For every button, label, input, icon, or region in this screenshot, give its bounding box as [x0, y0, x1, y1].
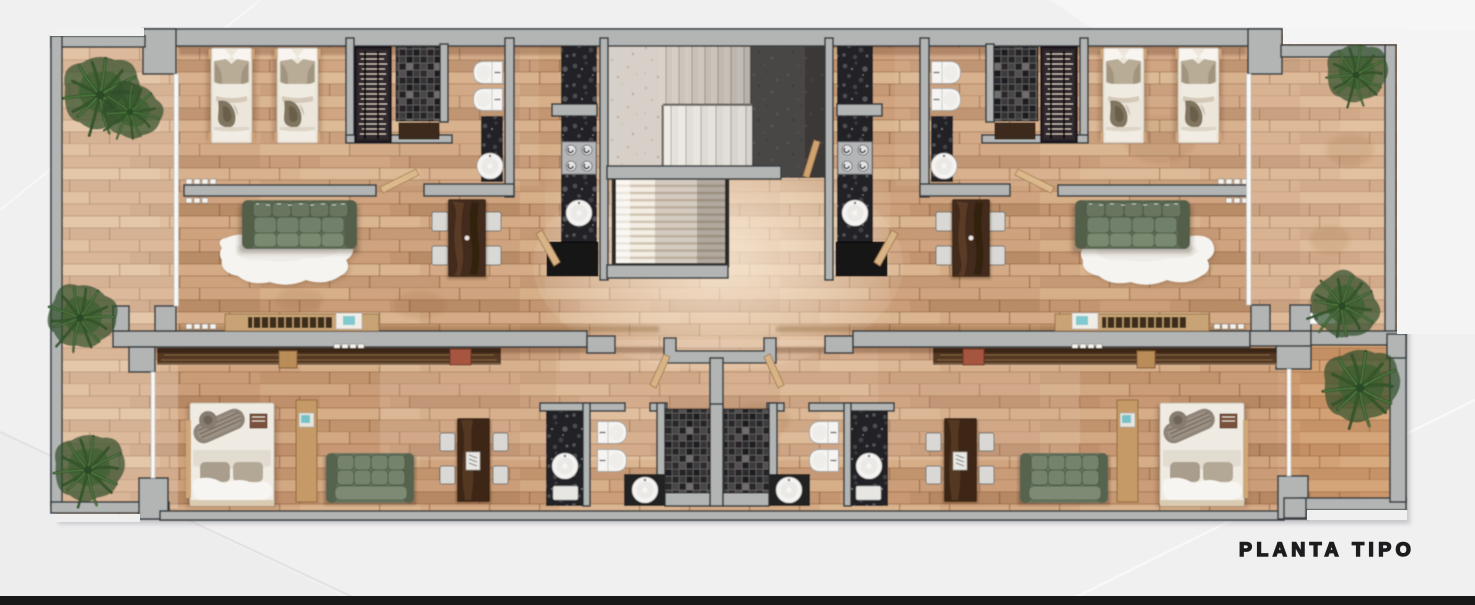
svg-text:PLANTA TIPO: PLANTA TIPO	[1239, 539, 1415, 561]
